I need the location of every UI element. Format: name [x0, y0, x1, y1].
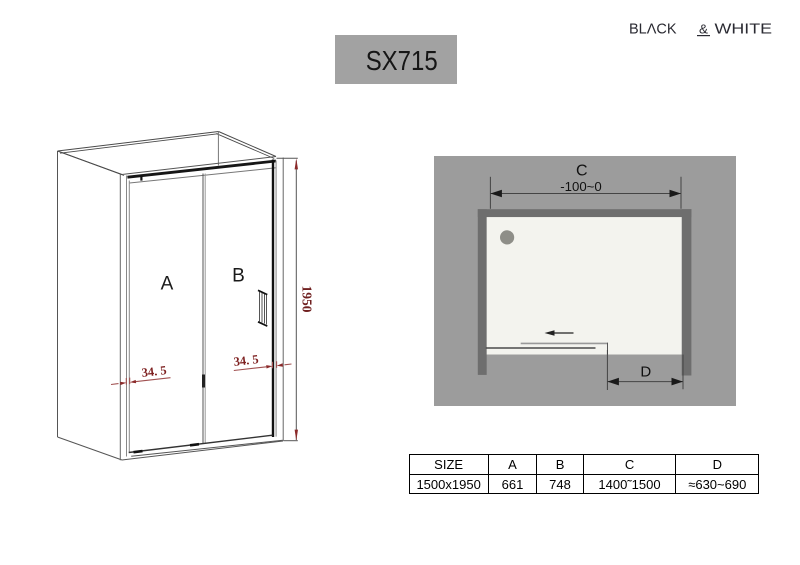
svg-text:-100~0: -100~0 [560, 179, 601, 194]
svg-text:C: C [576, 163, 588, 180]
svg-text:D: D [640, 363, 651, 380]
